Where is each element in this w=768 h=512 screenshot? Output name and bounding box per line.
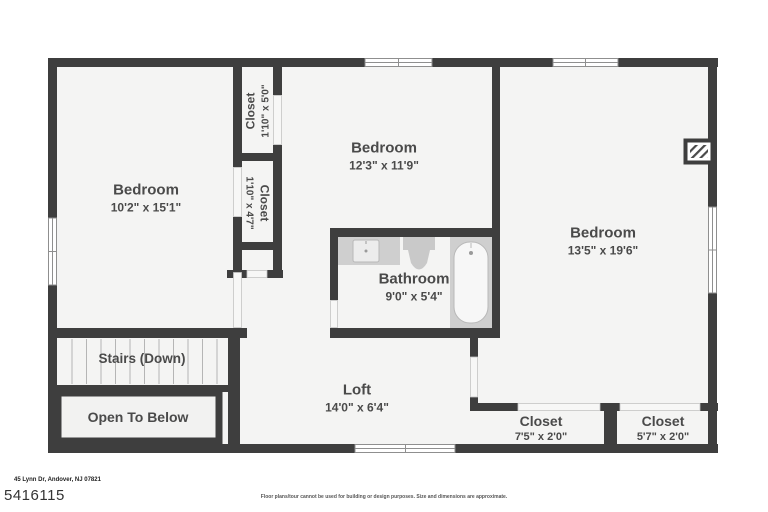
room-name: Closet bbox=[637, 412, 689, 430]
window-top-middle-icon bbox=[365, 59, 432, 67]
door-bathroom bbox=[331, 301, 338, 328]
room-label-loft: Loft 14'0" x 6'4" bbox=[325, 380, 389, 415]
room-name: Bathroom bbox=[379, 269, 450, 289]
room-label-closet-top: Closet 1'10" x 5'0" bbox=[244, 84, 273, 137]
room-label-bedroom-left: Bedroom 10'2" x 15'1" bbox=[111, 180, 181, 215]
door-bedroom-left bbox=[234, 273, 242, 328]
room-label-stairs: Stairs (Down) bbox=[98, 350, 185, 368]
room-label-bedroom-middle: Bedroom 12'3" x 11'9" bbox=[349, 138, 419, 173]
room-label-closet-bottom-left: Closet 7'5" x 2'0" bbox=[515, 412, 567, 444]
room-name: Closet bbox=[244, 84, 260, 137]
door-bedroom-right bbox=[471, 357, 478, 397]
bathtub-icon bbox=[450, 237, 492, 328]
door-closet-mid bbox=[234, 168, 242, 217]
room-dimensions: 13'5" x 19'6" bbox=[568, 243, 638, 259]
room-name: Stairs (Down) bbox=[98, 350, 185, 368]
window-right-icon bbox=[709, 207, 717, 293]
room-dimensions: 12'3" x 11'9" bbox=[349, 158, 419, 174]
room-label-bathroom: Bathroom 9'0" x 5'4" bbox=[379, 269, 450, 304]
footer-address: 45 Lynn Dr, Andover, NJ 07821 bbox=[14, 477, 101, 483]
room-name: Bedroom bbox=[111, 180, 181, 200]
door-closet-top bbox=[274, 96, 282, 145]
window-left-icon bbox=[49, 218, 57, 285]
room-dimensions: 7'5" x 2'0" bbox=[515, 430, 567, 444]
room-name: Closet bbox=[515, 412, 567, 430]
room-name: Bedroom bbox=[568, 223, 638, 243]
room-dimensions: 9'0" x 5'4" bbox=[379, 289, 450, 305]
room-name: Closet bbox=[256, 176, 272, 229]
room-dimensions: 14'0" x 6'4" bbox=[325, 400, 389, 416]
room-dimensions: 10'2" x 15'1" bbox=[111, 200, 181, 216]
room-label-closet-mid: Closet 1'10" x 4'7" bbox=[243, 176, 272, 229]
window-bottom-icon bbox=[355, 445, 455, 453]
room-name: Open To Below bbox=[88, 408, 189, 426]
chimney-icon bbox=[686, 141, 713, 163]
floor-plan-page: Bedroom 10'2" x 15'1" Closet 1'10" x 5'0… bbox=[0, 0, 768, 512]
footer-disclaimer: Floor plans/tour cannot be used for buil… bbox=[0, 494, 768, 500]
sink-icon bbox=[338, 237, 400, 265]
room-name: Bedroom bbox=[349, 138, 419, 158]
room-dimensions: 1'10" x 4'7" bbox=[243, 176, 256, 229]
room-dimensions: 5'7" x 2'0" bbox=[637, 430, 689, 444]
room-label-closet-bottom-right: Closet 5'7" x 2'0" bbox=[637, 412, 689, 444]
window-top-right-icon bbox=[553, 59, 618, 67]
room-dimensions: 1'10" x 5'0" bbox=[259, 84, 272, 137]
room-name: Loft bbox=[325, 380, 389, 400]
door-closet-bottom-left bbox=[518, 404, 600, 411]
room-label-open-to-below: Open To Below bbox=[88, 408, 189, 426]
door-closet-bottom-right bbox=[620, 404, 700, 411]
door-hall bbox=[247, 271, 267, 278]
room-label-bedroom-right: Bedroom 13'5" x 19'6" bbox=[568, 223, 638, 258]
